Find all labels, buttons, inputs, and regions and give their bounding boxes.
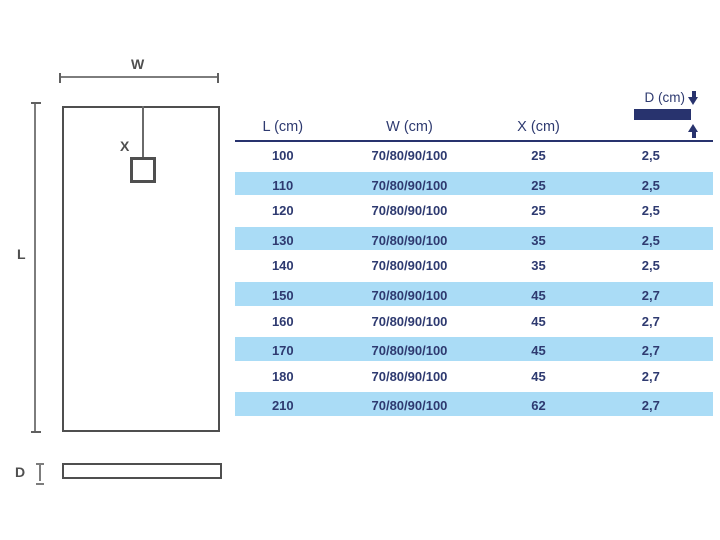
table-body: 100 70/80/90/100 25 2,5 110 70/80/90/100…: [235, 142, 713, 418]
cell-drain-offset: 25: [488, 172, 588, 196]
cell-length: 110: [235, 172, 331, 196]
cell-drain-offset: 35: [488, 252, 588, 280]
cell-drain-offset: 45: [488, 337, 588, 361]
table-row: 180 70/80/90/100 45 2,7: [235, 363, 713, 391]
cell-drain-offset: 25: [488, 142, 588, 170]
table-header-row: L (cm) W (cm) X (cm) D (cm): [235, 90, 713, 142]
depth-label: D: [15, 464, 25, 480]
table-row: 210 70/80/90/100 62 2,7: [235, 390, 713, 418]
tray-side-view: [62, 463, 222, 479]
table-row: 110 70/80/90/100 25 2,5: [235, 170, 713, 198]
cell-width: 70/80/90/100: [331, 197, 489, 225]
cell-width: 70/80/90/100: [331, 308, 489, 336]
table-row: 100 70/80/90/100 25 2,5: [235, 142, 713, 170]
table-row: 140 70/80/90/100 35 2,5: [235, 252, 713, 280]
tray-top-view: [62, 106, 220, 432]
cell-length: 150: [235, 282, 331, 306]
col-header-depth-label: D (cm): [645, 90, 686, 105]
cell-width: 70/80/90/100: [331, 227, 489, 251]
cell-depth: 2,5: [589, 197, 713, 225]
cell-drain-offset: 25: [488, 197, 588, 225]
depth-header-icon: D (cm): [635, 90, 699, 140]
depth-bar-glyph: [634, 109, 691, 120]
cell-drain-offset: 45: [488, 282, 588, 306]
cell-length: 140: [235, 252, 331, 280]
cell-length: 120: [235, 197, 331, 225]
cell-depth: 2,7: [589, 282, 713, 306]
cell-width: 70/80/90/100: [331, 392, 489, 416]
table-row: 150 70/80/90/100 45 2,7: [235, 280, 713, 308]
cell-length: 180: [235, 363, 331, 391]
cell-depth: 2,7: [589, 363, 713, 391]
table-row: 160 70/80/90/100 45 2,7: [235, 308, 713, 336]
cell-depth: 2,7: [589, 392, 713, 416]
width-dimension-line: [59, 76, 219, 78]
arrow-up-icon: [688, 124, 699, 138]
length-dimension-line: [34, 102, 36, 433]
cell-length: 160: [235, 308, 331, 336]
cell-depth: 2,7: [589, 308, 713, 336]
dimensions-table: L (cm) W (cm) X (cm) D (cm) 100 70/80/90…: [235, 90, 713, 418]
cell-depth: 2,7: [589, 337, 713, 361]
drain-square: [130, 157, 156, 183]
cell-width: 70/80/90/100: [331, 172, 489, 196]
product-dimensions-sheet: W L X D L (cm) W (cm) X (cm) D (cm): [0, 0, 720, 540]
cell-depth: 2,5: [589, 172, 713, 196]
cell-depth: 2,5: [589, 252, 713, 280]
cell-depth: 2,5: [589, 142, 713, 170]
cell-length: 100: [235, 142, 331, 170]
cell-width: 70/80/90/100: [331, 252, 489, 280]
cell-length: 130: [235, 227, 331, 251]
drain-offset-label: X: [120, 138, 130, 154]
cell-width: 70/80/90/100: [331, 282, 489, 306]
table-row: 120 70/80/90/100 25 2,5: [235, 197, 713, 225]
width-label: W: [131, 56, 145, 72]
col-header-length: L (cm): [235, 119, 331, 140]
col-header-drain-offset: X (cm): [488, 119, 588, 140]
cell-drain-offset: 45: [488, 308, 588, 336]
cell-width: 70/80/90/100: [331, 363, 489, 391]
cell-width: 70/80/90/100: [331, 142, 489, 170]
cell-drain-offset: 35: [488, 227, 588, 251]
cell-width: 70/80/90/100: [331, 337, 489, 361]
cell-depth: 2,5: [589, 227, 713, 251]
length-label: L: [17, 246, 27, 262]
cell-drain-offset: 62: [488, 392, 588, 416]
table-row: 170 70/80/90/100 45 2,7: [235, 335, 713, 363]
depth-tick-mark: [36, 463, 44, 481]
col-header-depth: D (cm): [589, 135, 713, 140]
cell-length: 210: [235, 392, 331, 416]
col-header-width: W (cm): [331, 119, 489, 140]
arrow-down-icon: [688, 91, 699, 105]
cell-drain-offset: 45: [488, 363, 588, 391]
table-row: 130 70/80/90/100 35 2,5: [235, 225, 713, 253]
cell-length: 170: [235, 337, 331, 361]
